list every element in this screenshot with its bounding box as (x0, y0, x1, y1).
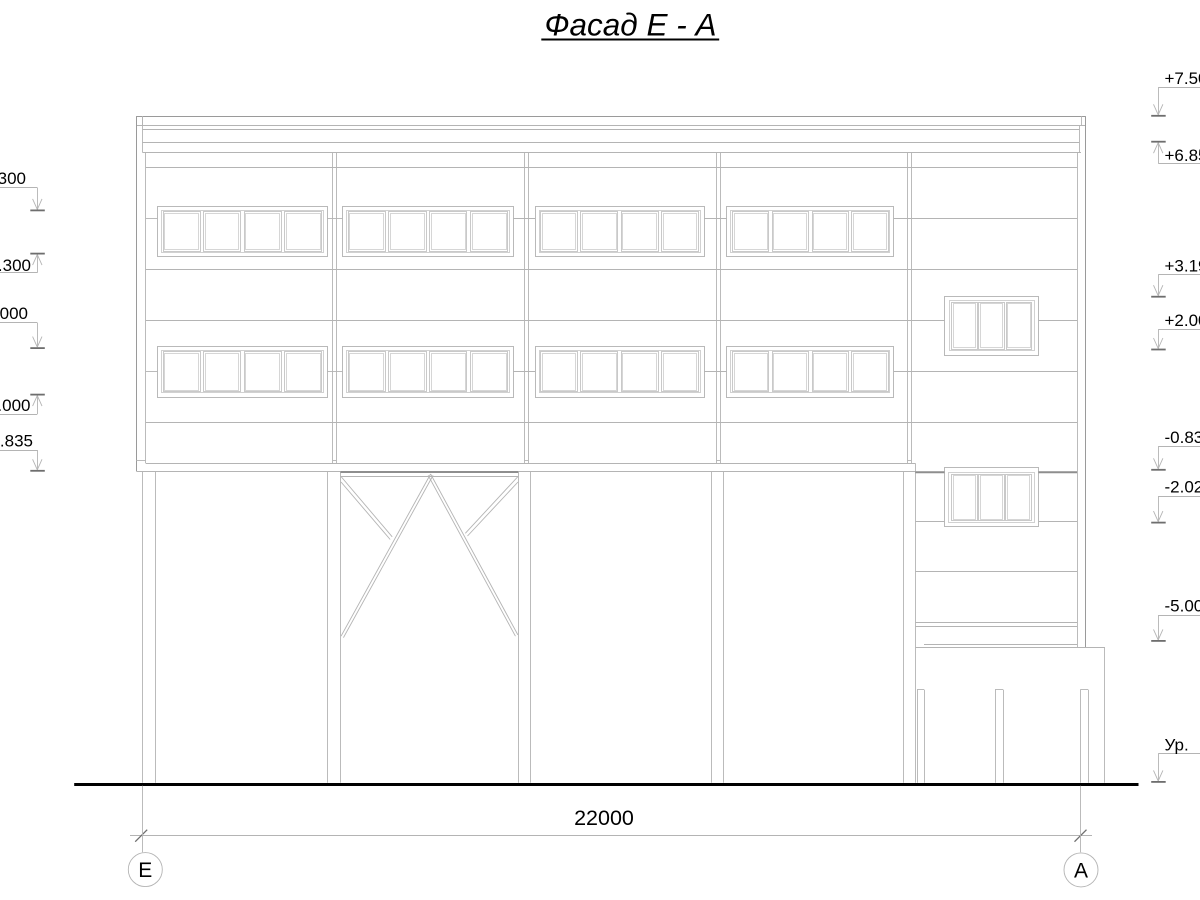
svg-text:-0.835: -0.835 (1165, 428, 1200, 447)
svg-text:+1.000: +1.000 (0, 396, 31, 415)
svg-text:Е: Е (138, 859, 152, 882)
svg-text:+2.000: +2.000 (1165, 311, 1200, 330)
svg-text:+7.500: +7.500 (1165, 69, 1200, 88)
svg-text:-0.835: -0.835 (0, 432, 33, 451)
svg-text:Ур.: Ур. (1165, 736, 1189, 755)
svg-text:-2.020: -2.020 (1165, 478, 1200, 497)
svg-text:+3.190: +3.190 (1165, 257, 1200, 276)
svg-text:+2.000: +2.000 (0, 304, 28, 323)
svg-text:+4.300: +4.300 (0, 256, 31, 275)
svg-text:22000: 22000 (574, 806, 634, 830)
svg-text:-5.000: -5.000 (1165, 597, 1200, 616)
svg-text:+5.300: +5.300 (0, 169, 26, 188)
svg-text:А: А (1074, 859, 1088, 882)
svg-text:+6.850: +6.850 (1165, 146, 1200, 165)
svg-text:Фасад Е - А: Фасад Е - А (544, 6, 716, 42)
